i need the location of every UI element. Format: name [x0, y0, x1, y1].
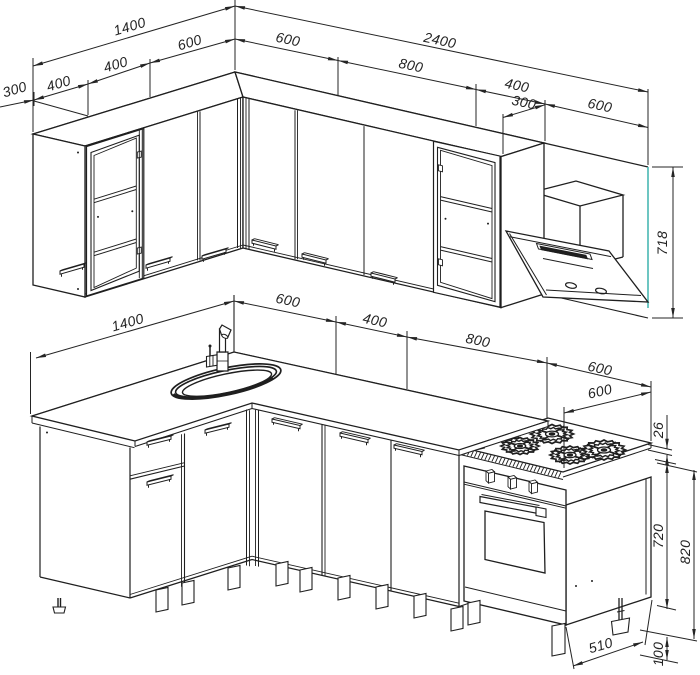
svg-text:718: 718 [654, 231, 670, 256]
svg-text:720: 720 [650, 524, 666, 549]
svg-text:820: 820 [677, 540, 693, 565]
svg-text:100: 100 [650, 642, 666, 667]
svg-text:26: 26 [650, 422, 666, 439]
